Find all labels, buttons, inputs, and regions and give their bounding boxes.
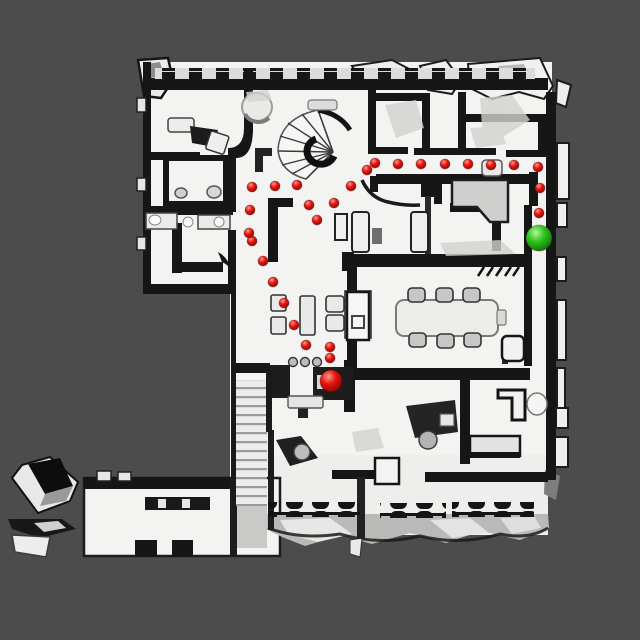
waypoint-dot (346, 181, 356, 191)
waypoint-dot (247, 182, 257, 192)
waypoint-dot (258, 256, 268, 266)
scan-viewer-viewport[interactable] (0, 0, 640, 640)
goal-position-dot (526, 225, 552, 251)
waypoint-dot (534, 208, 544, 218)
waypoint-dot (329, 198, 339, 208)
waypoint-dot (268, 277, 278, 287)
waypoint-dot (312, 215, 322, 225)
waypoint-dot (292, 180, 302, 190)
waypoint-dot (301, 340, 311, 350)
waypoint-dot (362, 165, 372, 175)
waypoint-dot (245, 205, 255, 215)
waypoint-dot (440, 159, 450, 169)
waypoint-dot (509, 160, 519, 170)
waypoint-dot (463, 159, 473, 169)
waypoint-dot (279, 298, 289, 308)
waypoint-dot (304, 200, 314, 210)
waypoint-dot (370, 158, 380, 168)
waypoint-dot (244, 228, 254, 238)
waypoint-dot (535, 183, 545, 193)
waypoint-dot (416, 159, 426, 169)
agent-position-dot (320, 370, 342, 392)
waypoint-dot (270, 181, 280, 191)
waypoint-dot (533, 162, 543, 172)
floorplan-map (0, 0, 640, 640)
waypoint-dot (325, 342, 335, 352)
waypoint-dot (325, 353, 335, 363)
waypoint-dot (289, 320, 299, 330)
waypoint-dot (486, 160, 496, 170)
waypoint-dot (393, 159, 403, 169)
